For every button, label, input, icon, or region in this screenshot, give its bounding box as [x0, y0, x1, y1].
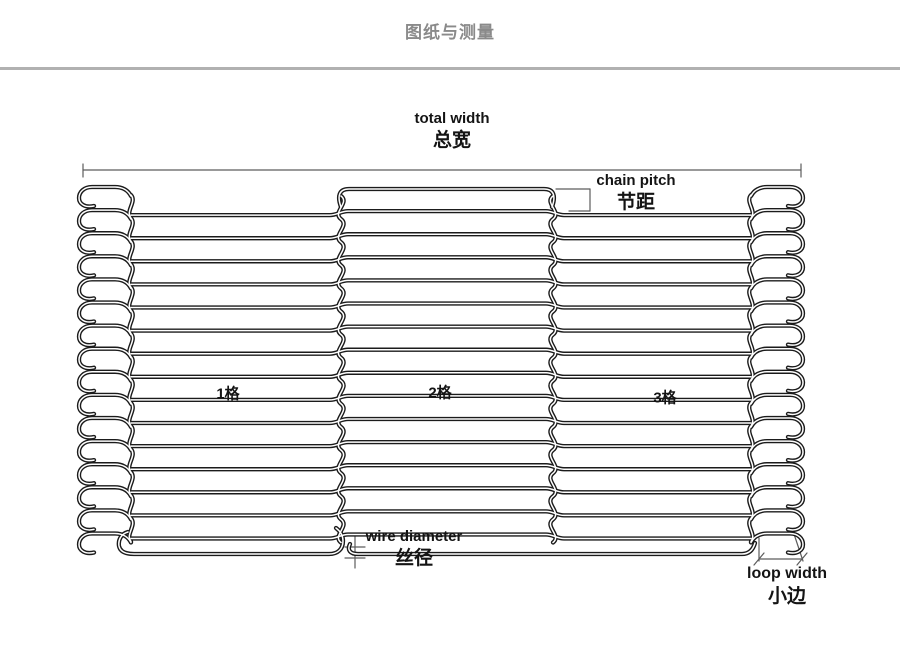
wire-outline-path	[751, 464, 803, 484]
wire-outline-path	[79, 395, 131, 415]
wire-outline-path	[751, 233, 803, 253]
wire-outline-path	[751, 372, 803, 392]
wire-outline-path	[751, 349, 803, 369]
wire-core	[79, 187, 803, 554]
wire-outline-path	[79, 464, 131, 484]
wire-outline-path	[119, 528, 343, 554]
wire-outline-path	[79, 210, 131, 230]
chain-pitch-label: chain pitch 节距	[596, 172, 675, 214]
wire-outline-path	[79, 349, 131, 369]
wire-outline-path	[79, 279, 131, 299]
wire-outline-path	[79, 372, 131, 392]
loop-width-label: loop width 小边	[747, 565, 827, 608]
section-1-label: 1格	[216, 383, 239, 404]
wire-outline-path	[79, 303, 131, 323]
total-width-label-zh: 总宽	[415, 130, 490, 152]
wire-outline-path	[751, 326, 803, 346]
wire-diameter-label: wire diameter 丝径	[366, 528, 463, 570]
wire-outline-path	[751, 418, 803, 438]
total-width-label-en: total width	[415, 110, 490, 127]
wire-outline-path	[79, 487, 131, 507]
wire-outline	[79, 187, 803, 554]
loop-width-label-zh: 小边	[747, 586, 827, 608]
loop-width-label-en: loop width	[747, 565, 827, 583]
wire-outline-path	[751, 487, 803, 507]
wire-outline-path	[339, 189, 554, 207]
chain-pitch-label-zh: 节距	[596, 192, 675, 214]
section-2-label: 2格	[428, 382, 451, 403]
wire-diameter-label-en: wire diameter	[366, 528, 463, 545]
wire-outline-path	[751, 210, 803, 230]
wire-core-path	[119, 528, 343, 554]
wire-outline-path	[79, 187, 131, 207]
wire-outline-path	[751, 187, 803, 207]
total-width-label: total width 总宽	[415, 110, 490, 152]
wire-outline-path	[79, 233, 131, 253]
chain-pitch-label-en: chain pitch	[596, 172, 675, 189]
wire-outline-path	[79, 418, 131, 438]
section-3-label: 3格	[653, 387, 676, 408]
wire-outline-path	[751, 256, 803, 276]
wire-outline-path	[751, 303, 803, 323]
dimension-line	[83, 164, 807, 568]
wire-diameter-label-zh: 丝径	[366, 548, 463, 570]
wire-outline-path	[751, 441, 803, 461]
wire-outline-path	[751, 279, 803, 299]
wire-outline-path	[79, 256, 131, 276]
wire-outline-path	[79, 326, 131, 346]
wire-outline-path	[751, 510, 803, 530]
wire-outline-path	[79, 510, 131, 530]
wire-outline-path	[79, 441, 131, 461]
wire-core-path	[339, 189, 554, 207]
wire-outline-path	[751, 395, 803, 415]
